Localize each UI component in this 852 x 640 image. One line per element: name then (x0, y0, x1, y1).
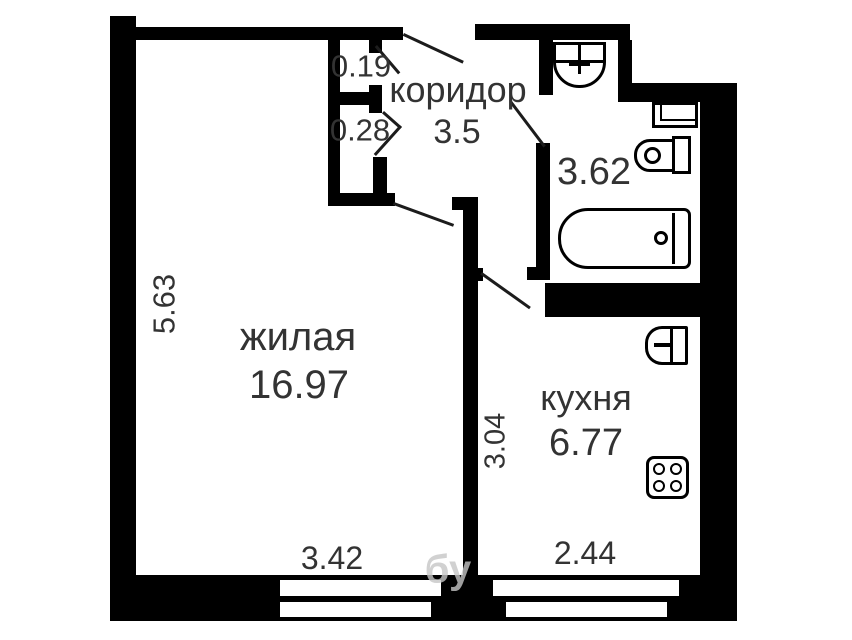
wall-top-entry (475, 24, 630, 40)
dim-kitchen-side: 3.04 (482, 413, 511, 469)
stove-burner (670, 463, 682, 475)
wall-left-exterior (110, 16, 136, 621)
wall-top-living (110, 27, 403, 40)
kitchen-sink-fixture (645, 326, 688, 365)
wall-entry-right-stub (618, 40, 632, 85)
stove-burner (670, 480, 682, 492)
stove-burner (653, 480, 665, 492)
wall-bathroom-left-foot (527, 267, 545, 280)
wall-bathroom-left (536, 143, 550, 280)
living-room-window-outer-pane (277, 577, 444, 599)
wall-sink-nook-stub (539, 40, 553, 95)
kitchen-name: кухня (540, 380, 632, 416)
washbasin-center-line (578, 45, 581, 60)
washing-machine-fixture (652, 102, 698, 128)
washbasin-faucet-bar (569, 63, 590, 66)
closet-partition-mid (340, 92, 370, 105)
dim-closet-bottom: 0.28 (330, 115, 390, 146)
kitchen-door-line (480, 272, 531, 309)
corridor-name: коридор (389, 72, 526, 108)
corridor-area: 3.5 (433, 115, 480, 149)
living-room-name: жилая (240, 317, 356, 357)
dim-closet-top: 0.19 (331, 51, 391, 82)
toilet-bowl (634, 139, 675, 172)
bathtub-fixture (558, 208, 691, 269)
floor-plan: жилая 16.97 коридор 3.5 3.62 кухня 6.77 … (0, 0, 852, 640)
wall-right-exterior (700, 83, 737, 621)
stove-fixture (646, 456, 689, 499)
bathroom-area: 3.62 (557, 153, 631, 191)
toilet-bowl-circle (644, 147, 661, 164)
dim-living-width: 3.42 (301, 542, 363, 574)
dim-living-side: 5.63 (149, 274, 180, 334)
kitchen-sink-faucet (654, 343, 672, 347)
wall-bathroom-bottom (545, 283, 700, 317)
washing-machine-inner-line (660, 105, 695, 121)
kitchen-window-outer-pane (490, 577, 682, 599)
closet-wall-bottom (328, 193, 395, 206)
living-room-window-inner-pane (277, 599, 434, 620)
kitchen-area: 6.77 (549, 424, 623, 462)
living-door-line (393, 202, 454, 227)
kitchen-window-inner-pane (503, 599, 670, 620)
bathtub-drain (654, 231, 668, 245)
dim-kitchen-width: 2.44 (554, 537, 616, 569)
closet-partition-mid-stub (369, 85, 382, 113)
wall-living-kitchen-divider (463, 197, 478, 578)
toilet-tank (672, 136, 691, 174)
stove-burner (653, 463, 665, 475)
watermark-text: бу (425, 548, 471, 593)
washbasin-fixture (553, 42, 606, 88)
entry-door-line (403, 33, 464, 64)
bathtub-end-line (672, 213, 675, 264)
closet-partition-lower-stub (373, 157, 387, 197)
living-room-area: 16.97 (249, 365, 349, 405)
